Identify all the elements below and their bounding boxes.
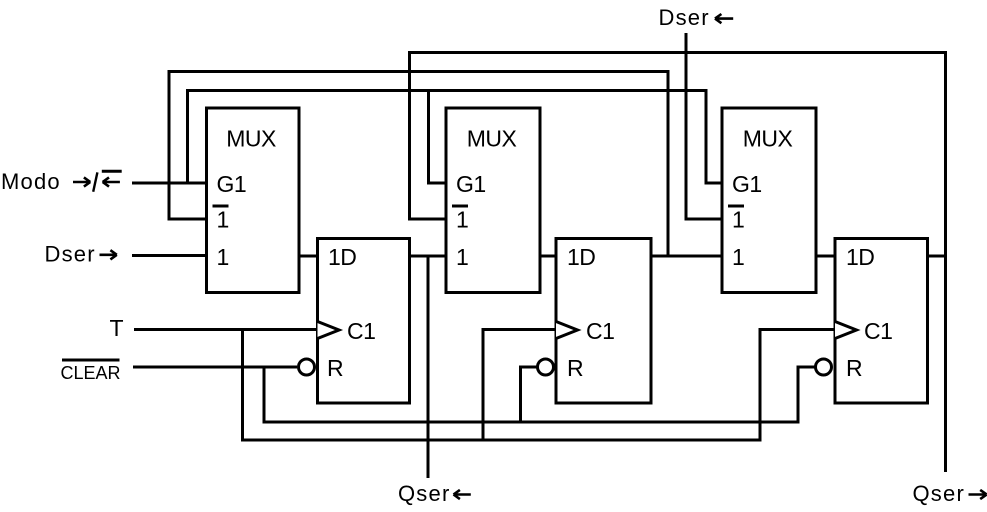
svg-text:C1: C1 [347, 318, 375, 344]
svg-text:1: 1 [732, 207, 744, 233]
svg-text:1: 1 [456, 207, 468, 233]
svg-text:G1: G1 [456, 171, 486, 197]
svg-text:1D: 1D [567, 244, 595, 270]
svg-text:MUX: MUX [226, 126, 276, 152]
svg-text:Qser: Qser [398, 481, 450, 506]
svg-text:1: 1 [217, 244, 229, 270]
svg-text:1: 1 [217, 207, 229, 233]
svg-text:R: R [327, 355, 343, 381]
svg-text:MUX: MUX [743, 126, 793, 152]
svg-text:CLEAR: CLEAR [60, 363, 120, 383]
svg-text:Dser: Dser [659, 5, 710, 30]
svg-text:T: T [109, 315, 123, 341]
svg-text:G1: G1 [732, 171, 762, 197]
svg-text:Modo: Modo [1, 169, 61, 194]
svg-text:Dser: Dser [45, 242, 96, 267]
svg-text:C1: C1 [586, 318, 614, 344]
svg-text:1: 1 [732, 244, 744, 270]
svg-text:Qser: Qser [913, 481, 965, 506]
svg-text:1D: 1D [328, 244, 356, 270]
svg-text:1D: 1D [846, 244, 874, 270]
svg-text:1: 1 [456, 244, 468, 270]
svg-text:C1: C1 [864, 318, 892, 344]
svg-text:MUX: MUX [467, 126, 517, 152]
svg-text:R: R [567, 355, 583, 381]
svg-text:G1: G1 [217, 171, 247, 197]
svg-text:R: R [846, 355, 862, 381]
